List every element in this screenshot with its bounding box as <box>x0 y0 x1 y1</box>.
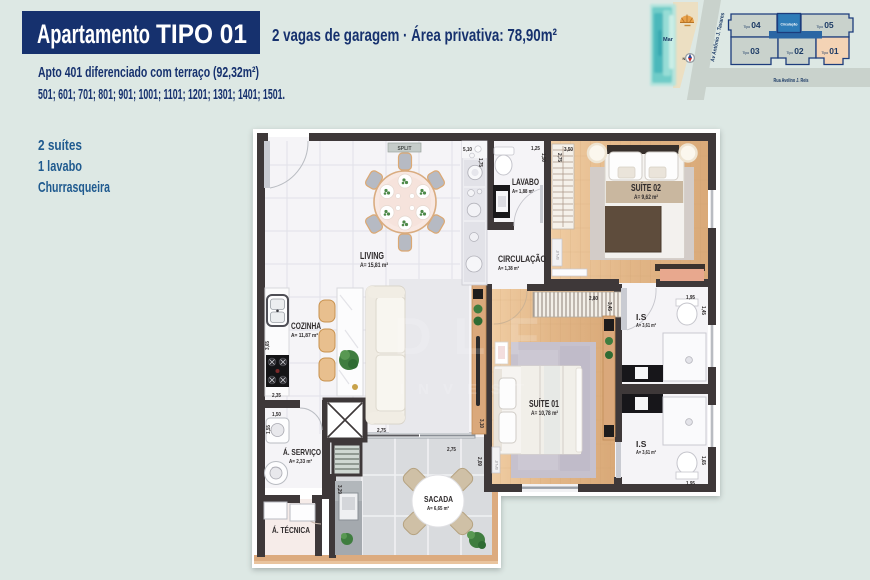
svg-text:A= 10,78 m²: A= 10,78 m² <box>531 410 558 417</box>
svg-text:1,65: 1,65 <box>700 456 706 465</box>
svg-text:1,75: 1,75 <box>477 158 483 167</box>
svg-text:A= 9,62 m²: A= 9,62 m² <box>634 194 658 201</box>
svg-text:N: N <box>683 57 686 61</box>
svg-text:LAVABO: LAVABO <box>512 177 539 187</box>
svg-text:2,09: 2,09 <box>476 457 482 466</box>
svg-text:A= 1,88 m²: A= 1,88 m² <box>512 188 534 195</box>
svg-text:SUÍTE 01: SUÍTE 01 <box>529 397 559 410</box>
svg-text:2,35: 2,35 <box>272 393 281 399</box>
svg-text:SPLIT: SPLIT <box>556 249 560 260</box>
svg-text:Churrasqueira: Churrasqueira <box>38 179 110 196</box>
svg-text:Mar: Mar <box>663 37 674 43</box>
svg-text:A= 3,61 m²: A= 3,61 m² <box>636 322 656 329</box>
svg-text:501; 601; 701; 801; 901; 1001;: 501; 601; 701; 801; 901; 1001; 1101; 120… <box>38 86 285 103</box>
svg-text:SPLIT: SPLIT <box>495 459 499 470</box>
svg-text:3,45: 3,45 <box>606 302 612 311</box>
svg-text:1 lavabo: 1 lavabo <box>38 158 82 175</box>
svg-text:2,80: 2,80 <box>589 296 598 302</box>
svg-text:CIRCULAÇÃO: CIRCULAÇÃO <box>498 254 546 264</box>
svg-text:I.S: I.S <box>636 312 647 322</box>
svg-text:SPLIT: SPLIT <box>398 146 412 152</box>
svg-text:SACADA: SACADA <box>424 494 453 504</box>
svg-text:A= 2,33 m²: A= 2,33 m² <box>289 458 312 465</box>
svg-text:2 vagas de garagem · Área priv: 2 vagas de garagem · Área privativa: 78,… <box>272 24 557 45</box>
svg-text:1,95: 1,95 <box>686 295 695 301</box>
svg-text:Á. TÉCNICA: Á. TÉCNICA <box>272 525 310 535</box>
svg-text:1,55: 1,55 <box>266 425 272 434</box>
svg-text:TIPO 01: TIPO 01 <box>156 19 247 49</box>
svg-text:A= 15,81 m²: A= 15,81 m² <box>360 262 388 269</box>
svg-text:1,50: 1,50 <box>272 412 281 418</box>
svg-text:2,75: 2,75 <box>377 428 386 434</box>
svg-text:1,95: 1,95 <box>686 481 695 487</box>
svg-text:3,50: 3,50 <box>564 147 573 153</box>
svg-text:A= 3,61 m²: A= 3,61 m² <box>636 449 656 456</box>
svg-text:1,50: 1,50 <box>540 153 546 162</box>
svg-text:A= 11,87 m²: A= 11,87 m² <box>291 332 318 339</box>
svg-text:A= 6,65 m²: A= 6,65 m² <box>427 505 449 512</box>
svg-text:LIVING: LIVING <box>360 251 384 262</box>
svg-text:Apto 401 diferenciado com terr: Apto 401 diferenciado com terraço (92,32… <box>38 64 259 81</box>
svg-text:2 suítes: 2 suítes <box>38 137 82 154</box>
svg-text:1,25: 1,25 <box>531 146 540 152</box>
svg-text:COZINHA: COZINHA <box>291 321 321 331</box>
svg-text:Circulação: Circulação <box>781 22 798 27</box>
svg-text:INVEST: INVEST <box>400 381 538 398</box>
svg-text:SUÍTE 02: SUÍTE 02 <box>631 181 661 194</box>
svg-text:3,65: 3,65 <box>265 341 271 350</box>
svg-text:3,10: 3,10 <box>478 419 484 428</box>
svg-text:I.S: I.S <box>636 439 647 449</box>
svg-text:Apartamento: Apartamento <box>37 19 150 49</box>
svg-text:5,10: 5,10 <box>463 147 472 153</box>
svg-text:A= 1,38 m²: A= 1,38 m² <box>498 265 519 272</box>
svg-text:Á. SERVIÇO: Á. SERVIÇO <box>283 447 321 457</box>
svg-text:3,29: 3,29 <box>336 485 342 494</box>
svg-text:2,75: 2,75 <box>556 153 562 162</box>
svg-text:Rua Avelino J. Reis: Rua Avelino J. Reis <box>774 78 809 84</box>
svg-text:2,75: 2,75 <box>447 447 456 453</box>
svg-text:DLF: DLF <box>394 308 561 366</box>
svg-text:1,45: 1,45 <box>700 306 706 315</box>
